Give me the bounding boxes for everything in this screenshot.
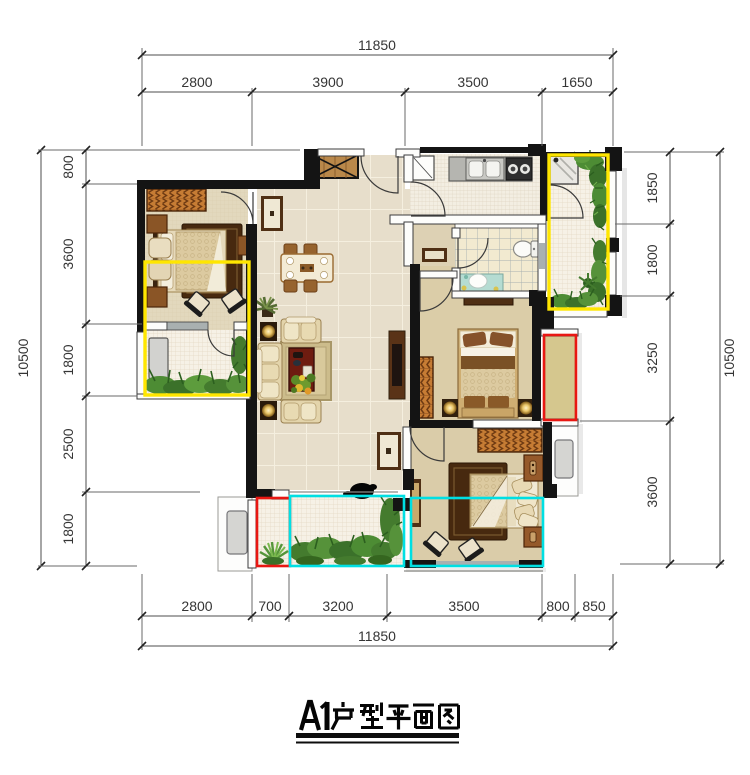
svg-text:10500: 10500 bbox=[721, 338, 737, 377]
svg-text:1800: 1800 bbox=[60, 513, 76, 544]
svg-text:850: 850 bbox=[582, 598, 606, 614]
svg-text:3200: 3200 bbox=[322, 598, 353, 614]
svg-text:3500: 3500 bbox=[448, 598, 479, 614]
svg-text:11850: 11850 bbox=[358, 628, 396, 644]
svg-text:3250: 3250 bbox=[644, 342, 660, 373]
svg-text:3600: 3600 bbox=[60, 238, 76, 269]
svg-text:2800: 2800 bbox=[181, 74, 212, 90]
svg-text:3500: 3500 bbox=[457, 74, 488, 90]
svg-text:2800: 2800 bbox=[181, 598, 212, 614]
svg-text:1850: 1850 bbox=[644, 172, 660, 203]
svg-text:1650: 1650 bbox=[561, 74, 592, 90]
svg-text:700: 700 bbox=[258, 598, 282, 614]
svg-text:800: 800 bbox=[60, 155, 76, 179]
svg-text:3600: 3600 bbox=[644, 476, 660, 507]
svg-text:2500: 2500 bbox=[60, 428, 76, 459]
svg-text:11850: 11850 bbox=[358, 37, 396, 53]
svg-text:800: 800 bbox=[546, 598, 570, 614]
svg-text:1800: 1800 bbox=[60, 344, 76, 375]
svg-text:3900: 3900 bbox=[312, 74, 343, 90]
svg-text:10500: 10500 bbox=[15, 338, 31, 377]
svg-text:1800: 1800 bbox=[644, 244, 660, 275]
